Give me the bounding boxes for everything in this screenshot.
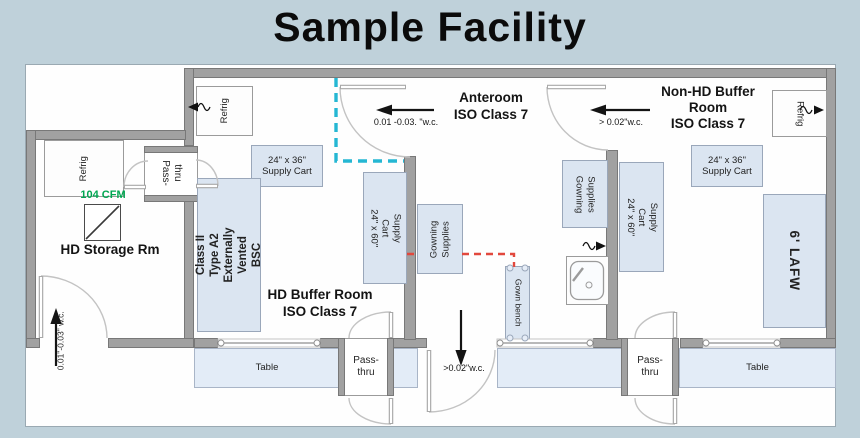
exhaust-cfm-label: 104 CFM: [68, 189, 138, 202]
table-hd-buffer: Table: [194, 348, 340, 388]
pass-thru-label: thru Pass-: [159, 160, 183, 186]
table-hd-buffer-sliver: [392, 348, 418, 388]
page-title: Sample Facility: [0, 4, 860, 51]
table-label: Table: [746, 362, 769, 374]
pass-thru-label: Pass- thru: [353, 355, 379, 379]
wall-bottom-hd-2: [320, 338, 340, 348]
refrigerator-label: Refrig: [78, 156, 90, 181]
pass-thru-frame: [672, 338, 679, 396]
lafw-hood: 6' LAFW: [763, 194, 826, 328]
wall-storage-north: [26, 130, 186, 140]
pass-thru-storage: thru Pass-: [144, 146, 198, 200]
room-label-hd-buffer: HD Buffer Room ISO Class 7: [250, 286, 390, 320]
table-non-hd: Table: [679, 348, 836, 388]
gowning-supplies-east: Supplies Gowning: [562, 160, 608, 228]
wall-bottom-nonhd-2: [780, 338, 836, 348]
exhaust-vent-symbol: [84, 204, 121, 241]
wall-storage-west: [26, 130, 36, 348]
refrigerator-label: Refrig: [219, 98, 231, 123]
wall-right: [826, 68, 836, 348]
supply-cart-24x36-nonhd: 24" x 36" Supply Cart: [691, 145, 763, 187]
supply-cart-24x60-hd: Supply Cart 24" x 60": [363, 172, 407, 284]
gowning-supplies-west: Gowning Supplies: [417, 204, 463, 274]
pass-thru-frame: [621, 338, 628, 396]
supply-cart-24x36-hd: 24" x 36" Supply Cart: [251, 145, 323, 187]
airflow-label-nonhd-door: > 0.02"w.c.: [590, 117, 652, 128]
pass-thru-hd: Pass- thru: [338, 338, 394, 396]
pass-thru-label: Pass- thru: [637, 355, 663, 379]
wall-top: [186, 68, 836, 78]
room-label-hd-storage: HD Storage Rm: [40, 241, 180, 258]
gown-bench: Gown bench: [505, 266, 530, 340]
airflow-label-storage-door: 0.01"-0.03" w.c.: [52, 296, 70, 386]
wall-hd-west-lower: [184, 200, 194, 348]
table-anteroom-segment: [497, 348, 623, 388]
wall-bottom-stub-storage: [26, 338, 40, 348]
supply-cart-24x60-nonhd: Supply Cart 24" x 60": [619, 162, 664, 272]
pass-thru-frame: [387, 338, 394, 396]
pass-thru-frame: [144, 146, 198, 153]
pass-thru-nonhd: Pass- thru: [621, 338, 679, 396]
pass-thru-frame: [338, 338, 345, 396]
refrigerator-non-hd: Refrig: [772, 90, 827, 137]
sink: [566, 256, 609, 305]
wall-bottom-nonhd-1: [680, 338, 703, 348]
airflow-label-anteroom-exit: >0.02"w.c.: [434, 363, 494, 374]
wall-bottom-storage: [108, 338, 194, 348]
table-label: Table: [256, 362, 279, 374]
wall-bottom-hd-1: [194, 338, 218, 348]
pass-thru-frame: [144, 195, 198, 202]
refrigerator-hd-buffer: Refrig: [196, 86, 253, 136]
refrigerator-label: Refrig: [794, 101, 806, 126]
airflow-label-hd-door: 0.01 -0.03. "w.c.: [366, 117, 446, 128]
